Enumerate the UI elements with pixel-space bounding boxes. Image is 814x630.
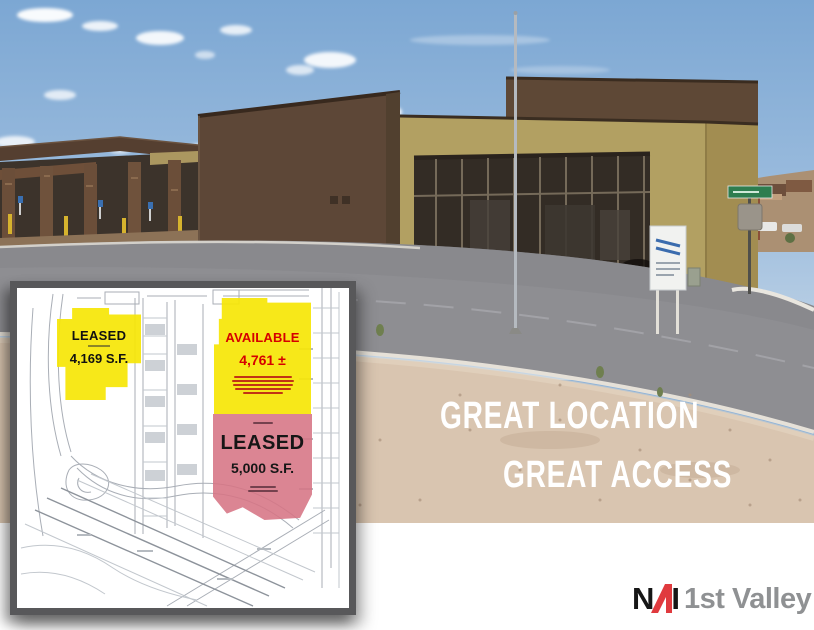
headline-line2-text: GREAT ACCESS [503,456,732,494]
headline-line1-text: GREAT LOCATION [440,397,699,435]
suite-c-leased-block: LEASED 5,000 S.F. [213,414,312,520]
suite-c-area: 5,000 S.F. [213,460,312,476]
nai-letter-i: I [671,583,679,614]
nai-red-a-icon [651,584,672,613]
suite-a-status: LEASED [57,328,141,343]
flyer-page: GREAT LOCATION GREAT ACCESS [0,0,814,630]
suite-a-fine-print [88,345,110,347]
main-building-dark-wing [198,92,400,258]
nai-letter-n: N [632,583,653,614]
suite-b-fine-print [214,376,311,394]
site-plan-drawing: LEASED 4,169 S.F. AVAILABLE 4,761 ± LEAS… [17,288,349,608]
suite-c-fine-print-top [253,422,273,424]
nai-1st-valley-logo: N I 1st Valley [632,583,811,614]
main-building-parapet [506,78,758,124]
brand-name: 1st Valley [684,585,811,614]
suite-b-area: 4,761 ± [214,352,311,368]
site-plan-inset: LEASED 4,169 S.F. AVAILABLE 4,761 ± LEAS… [10,281,356,615]
suite-c-fine-print-bottom [213,486,312,492]
headline-line2: GREAT ACCESS [503,456,813,494]
suite-b-status: AVAILABLE [214,330,311,345]
headline-line1: GREAT LOCATION [440,397,790,435]
suite-c-status: LEASED [213,432,312,455]
suite-b-available-block: AVAILABLE 4,761 ± [214,298,311,414]
